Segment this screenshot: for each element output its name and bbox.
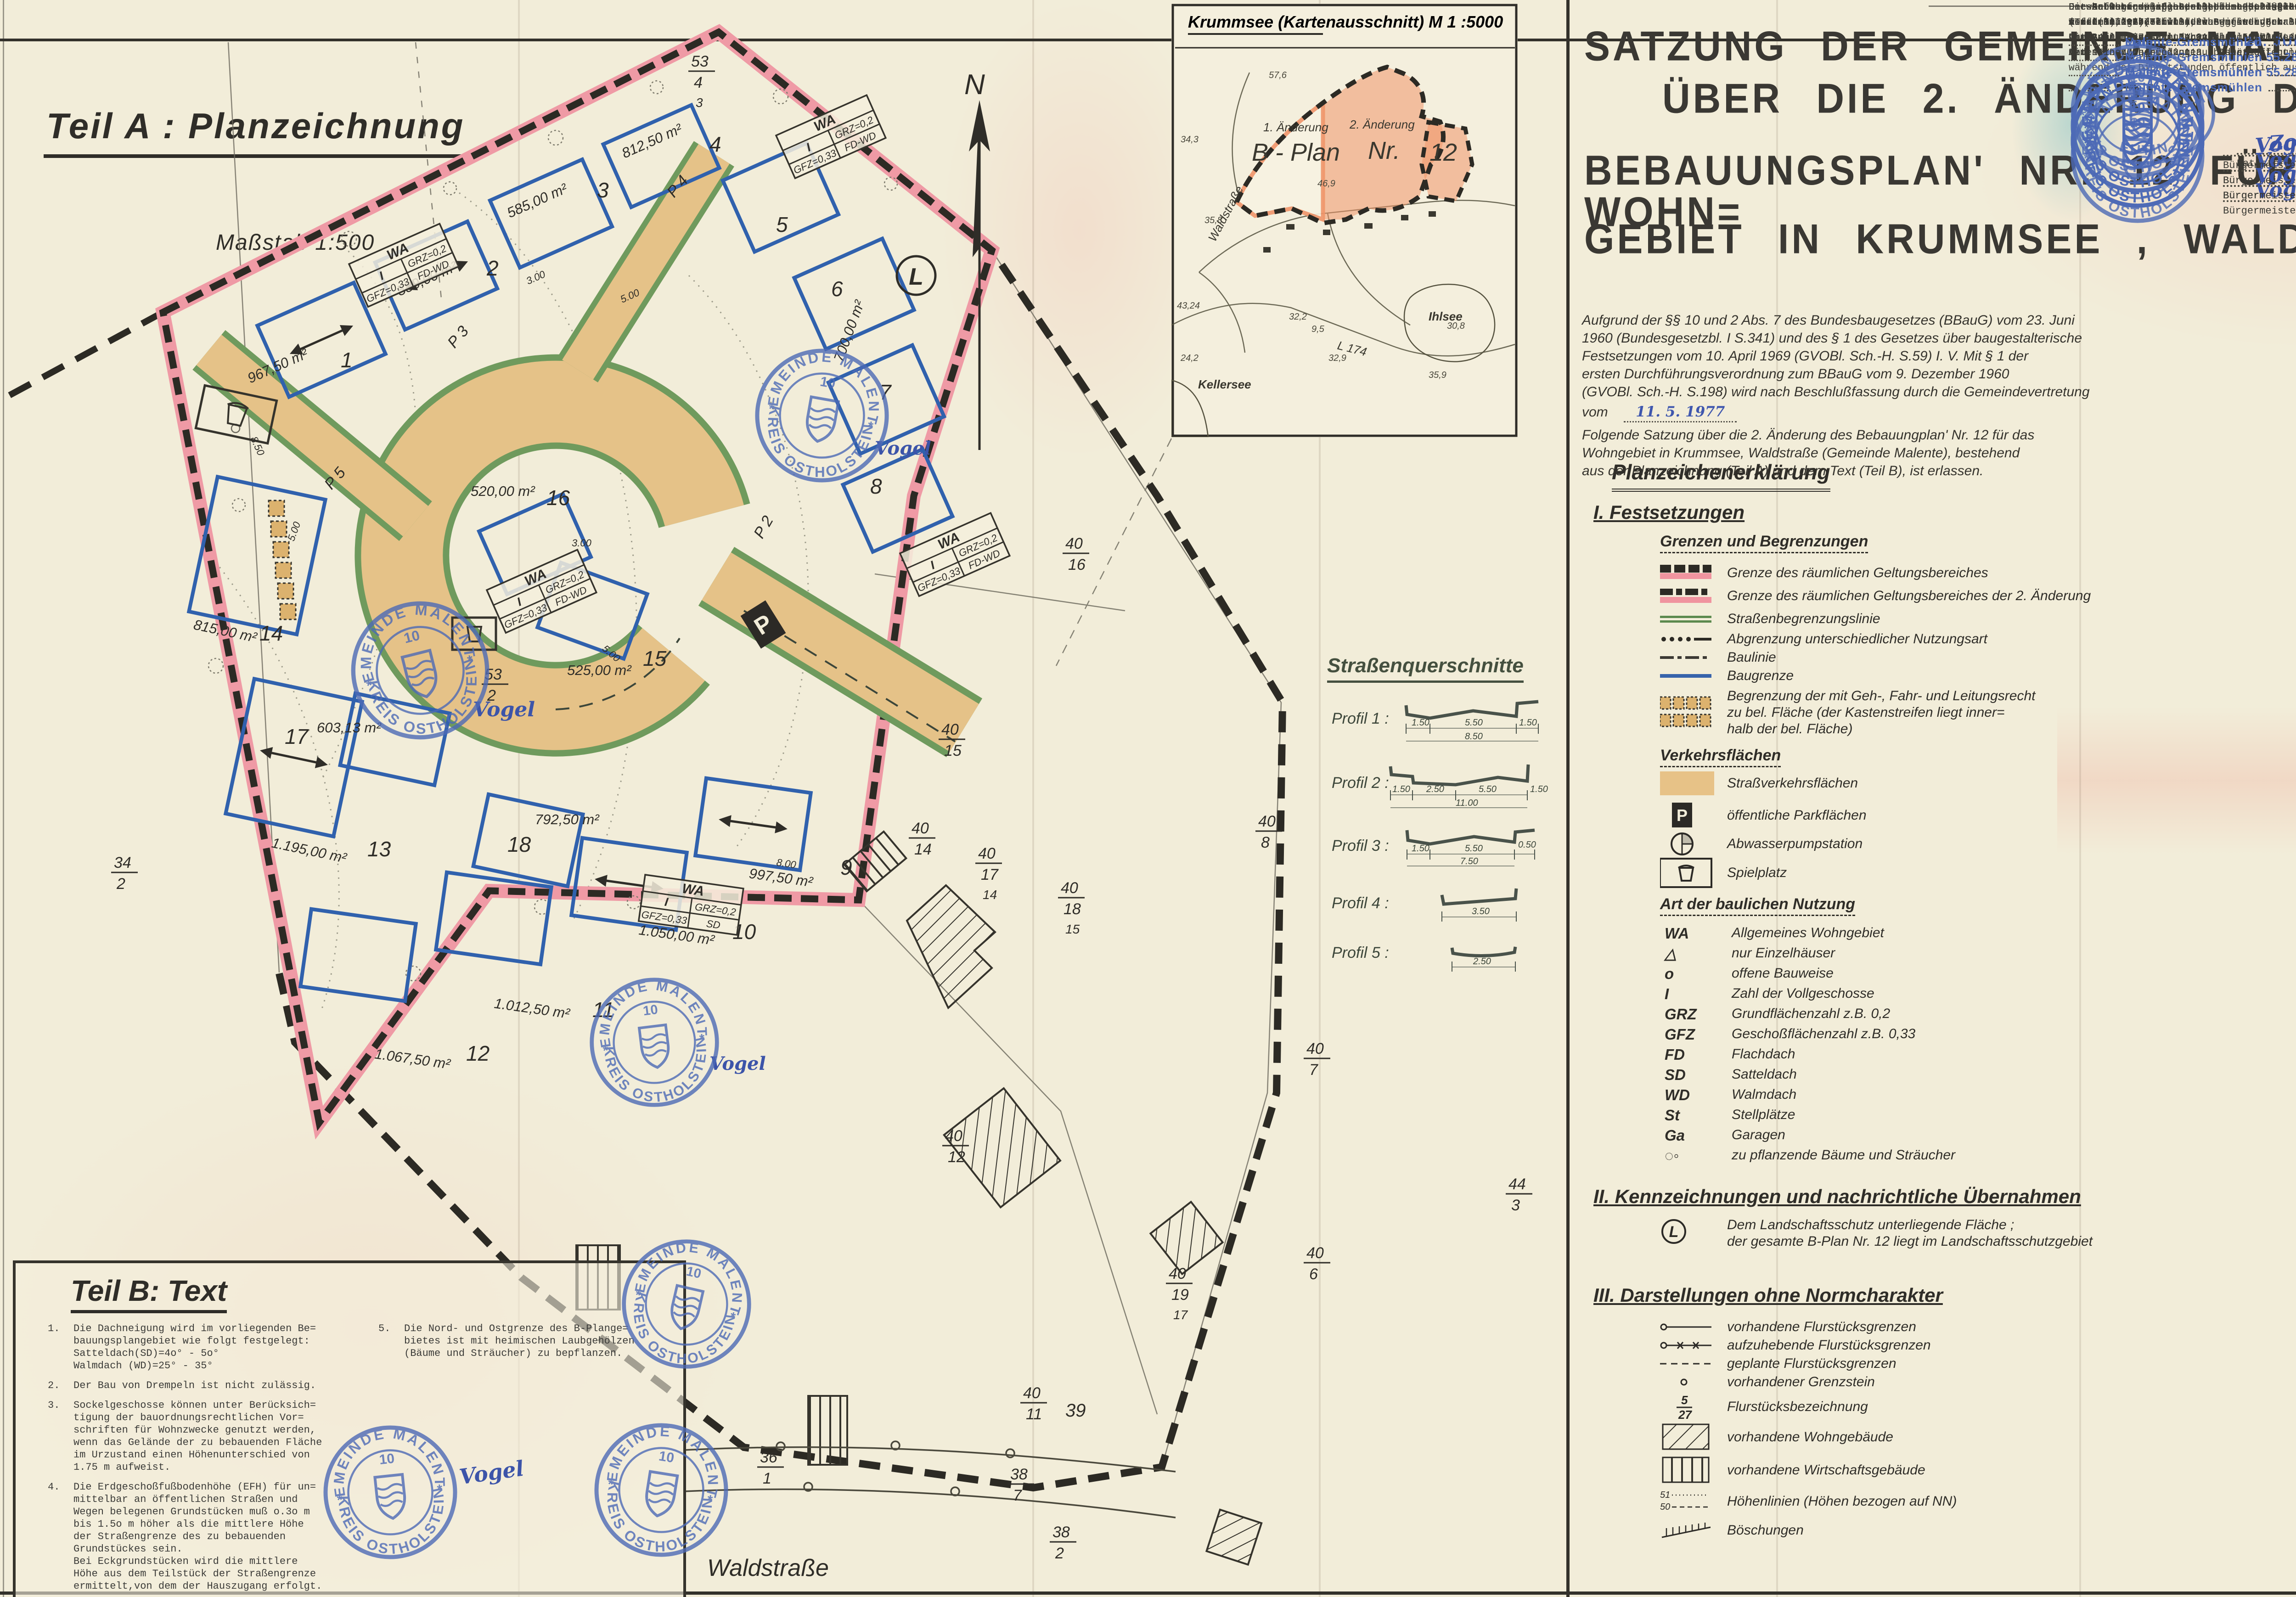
item-number: 5. bbox=[378, 1322, 404, 1360]
legend-item: 527 Flurstücksbezeichnung bbox=[1660, 1392, 1868, 1422]
svg-text:14: 14 bbox=[983, 888, 997, 902]
nutzung-code: ◌◦ bbox=[1665, 1148, 1720, 1163]
svg-text:P 2: P 2 bbox=[750, 513, 777, 541]
svg-text:2.50: 2.50 bbox=[1426, 784, 1444, 794]
svg-text:53: 53 bbox=[691, 53, 709, 70]
svg-text:39: 39 bbox=[1065, 1400, 1086, 1421]
profile-4-label: Profil 4 : bbox=[1332, 895, 1389, 911]
nutzung-label: Garagen bbox=[1732, 1127, 1785, 1143]
nutzung-code: I bbox=[1665, 986, 1720, 1001]
svg-text:38: 38 bbox=[1010, 1466, 1028, 1483]
item-number: 1. bbox=[48, 1322, 73, 1372]
nutzungsart-line-icon bbox=[1660, 632, 1715, 646]
svg-text:520,00 m²: 520,00 m² bbox=[471, 483, 535, 499]
svg-text:1.50: 1.50 bbox=[1392, 784, 1410, 794]
svg-text:40: 40 bbox=[1258, 813, 1276, 830]
legend-item: geplante Flurstücksgrenzen bbox=[1660, 1355, 1896, 1372]
svg-text:16: 16 bbox=[546, 486, 570, 510]
svg-text:1.012,50 m²: 1.012,50 m² bbox=[493, 995, 571, 1022]
svg-text:40: 40 bbox=[1061, 879, 1078, 897]
boundary-swatch-icon bbox=[1660, 564, 1715, 582]
nutzung-code: FD bbox=[1665, 1047, 1720, 1062]
svg-text:3: 3 bbox=[597, 178, 609, 202]
item-text: Die Nord- und Ostgrenze des B-Plange= bi… bbox=[404, 1322, 635, 1360]
svg-text:35,8: 35,8 bbox=[1204, 215, 1222, 225]
svg-text:1.50: 1.50 bbox=[1412, 843, 1429, 854]
svg-text:40: 40 bbox=[1306, 1040, 1324, 1057]
municipal-stamp bbox=[315, 1417, 466, 1568]
svg-text:5.50: 5.50 bbox=[1479, 784, 1497, 794]
legend-item: Abgrenzung unterschiedlicher Nutzungsart bbox=[1660, 631, 1987, 647]
legend-item: vorhandene Flurstücksgrenzen bbox=[1660, 1319, 1916, 1335]
gehfahrrecht-icon bbox=[1660, 695, 1715, 730]
svg-text:L: L bbox=[909, 264, 923, 290]
svg-text:11: 11 bbox=[1026, 1406, 1042, 1423]
nutzung-code: GFZ bbox=[1665, 1027, 1720, 1042]
flurgrenze-geplant-icon bbox=[1660, 1358, 1715, 1370]
svg-text:24,2: 24,2 bbox=[1180, 353, 1199, 363]
svg-text:19: 19 bbox=[1171, 1286, 1189, 1304]
svg-text:40: 40 bbox=[1065, 535, 1083, 552]
svg-text:3: 3 bbox=[696, 96, 703, 110]
legend-item: L Dem Landschaftsschutz unterliegende Fl… bbox=[1660, 1217, 2093, 1250]
municipal-stamp bbox=[580, 968, 728, 1116]
block-segment: 6.2.1978 bbox=[2109, 17, 2155, 28]
svg-text:7: 7 bbox=[1013, 1487, 1022, 1504]
svg-text:40: 40 bbox=[978, 845, 996, 862]
svg-text:18: 18 bbox=[507, 832, 531, 856]
svg-text:35,9: 35,9 bbox=[1429, 370, 1446, 380]
svg-text:43,24: 43,24 bbox=[1177, 301, 1200, 311]
svg-text:1.50: 1.50 bbox=[1412, 718, 1429, 728]
svg-text:15: 15 bbox=[643, 647, 667, 670]
svg-text:44: 44 bbox=[1508, 1175, 1526, 1193]
signer-role: Bürgermeister bbox=[2223, 190, 2296, 202]
svg-text:40: 40 bbox=[912, 820, 929, 837]
pumpstation-icon bbox=[1660, 832, 1715, 856]
svg-text:3.00: 3.00 bbox=[572, 537, 592, 549]
svg-text:792,50 m²: 792,50 m² bbox=[535, 811, 600, 827]
svg-text:7.50: 7.50 bbox=[1460, 856, 1478, 866]
teil-b-title: Teil B: Text bbox=[71, 1276, 227, 1313]
svg-text:18: 18 bbox=[1064, 900, 1081, 918]
profile-5-diagram: 2.50 bbox=[1414, 927, 1552, 977]
legend-item: Straßverkehrsflächen bbox=[1660, 770, 1858, 796]
svg-text:L: L bbox=[1669, 1223, 1679, 1241]
nutzung-code: △ bbox=[1665, 946, 1720, 961]
svg-text:1.50: 1.50 bbox=[1530, 784, 1548, 794]
legend-item: Baugrenze bbox=[1660, 668, 1794, 684]
profile-4-diagram: 3.50 bbox=[1414, 875, 1552, 930]
street-line-icon bbox=[1660, 611, 1715, 627]
item-number: 4. bbox=[48, 1481, 73, 1592]
profile-5-label: Profil 5 : bbox=[1332, 945, 1389, 961]
svg-text:17: 17 bbox=[1173, 1308, 1188, 1322]
svg-text:17: 17 bbox=[981, 866, 999, 883]
svg-text:5.50: 5.50 bbox=[1465, 718, 1483, 728]
svg-text:585,00 m²: 585,00 m² bbox=[505, 180, 570, 221]
wohngebaeude-icon bbox=[1660, 1423, 1715, 1451]
svg-text:2: 2 bbox=[1055, 1545, 1064, 1562]
legend-item: Begrenzung der mit Geh-, Fahr- und Leitu… bbox=[1660, 688, 2035, 737]
svg-text:14: 14 bbox=[259, 621, 283, 645]
legend-item: I Zahl der Vollgeschosse bbox=[1665, 984, 1955, 1004]
svg-text:B - Plan: B - Plan bbox=[1252, 139, 1340, 166]
svg-text:5: 5 bbox=[776, 213, 788, 236]
preamble-2: Folgende Satzung über die 2. Änderung de… bbox=[1582, 426, 2174, 480]
flurgrenze-aufhebung-icon bbox=[1660, 1339, 1715, 1351]
svg-text:1. Änderung: 1. Änderung bbox=[1263, 120, 1328, 134]
svg-text:P 3: P 3 bbox=[444, 323, 472, 352]
inset-map: Krummsee (Kartenausschnitt) M 1 :5000 1.… bbox=[1171, 4, 1518, 437]
preamble-vom-row: vom 11. 5. 1977 bbox=[1582, 403, 1737, 421]
nutzung-label: Geschoßflächenzahl z.B. 0,33 bbox=[1732, 1026, 1915, 1042]
profile-2-diagram: 1.50 2.50 5.50 1.50 11.00 bbox=[1387, 751, 1561, 817]
nutzung-code: WA bbox=[1665, 926, 1720, 941]
exit-road bbox=[716, 576, 964, 728]
svg-text:Waldstraße: Waldstraße bbox=[707, 1555, 829, 1581]
svg-text:30,8: 30,8 bbox=[1447, 321, 1465, 331]
landschaftsschutz-icon: L bbox=[1660, 1217, 1715, 1247]
wa-spec-box: WAIGRZ=0,2GFZ=0,33FD-WD bbox=[776, 95, 886, 178]
profile-3-diagram: 1.50 5.50 0.50 7.50 bbox=[1401, 814, 1557, 878]
nutzung-code: WD bbox=[1665, 1087, 1720, 1102]
svg-text:9: 9 bbox=[840, 855, 852, 879]
legend-sec1: I. Festsetzungen bbox=[1593, 503, 1745, 522]
svg-text:SD: SD bbox=[706, 918, 721, 931]
teil-b-item: 2. Der Bau von Drempeln ist nicht zuläss… bbox=[48, 1379, 360, 1392]
legend-item: FD Flachdach bbox=[1665, 1044, 1955, 1064]
svg-text:WA: WA bbox=[681, 881, 705, 899]
legend-item: aufzuhebende Flurstücksgrenzen bbox=[1660, 1337, 1931, 1354]
legend-item: △ nur Einzelhäuser bbox=[1665, 943, 1955, 963]
boundary2-swatch-icon bbox=[1660, 587, 1715, 605]
nutzung-code: Ga bbox=[1665, 1128, 1720, 1143]
legend-nutzung-title: Art der baulichen Nutzung bbox=[1660, 896, 1855, 916]
legend-item: Straßenbegrenzungslinie bbox=[1660, 611, 1880, 627]
legend-item: Grenze des räumlichen Geltungsbereiches … bbox=[1660, 587, 2091, 605]
svg-text:2: 2 bbox=[486, 256, 499, 280]
legend-item: GFZ Geschoßflächenzahl z.B. 0,33 bbox=[1665, 1024, 1955, 1044]
legend-item: SD Satteldach bbox=[1665, 1064, 1955, 1085]
svg-text:34: 34 bbox=[114, 854, 131, 872]
nutzung-code: St bbox=[1665, 1108, 1720, 1123]
svg-text:1.50: 1.50 bbox=[1519, 718, 1537, 728]
svg-text:5.50: 5.50 bbox=[1465, 843, 1483, 854]
nutzung-label: offene Bauweise bbox=[1732, 965, 1834, 982]
svg-text:15: 15 bbox=[944, 742, 962, 759]
svg-text:5.00: 5.00 bbox=[285, 520, 303, 543]
item-text: Der Bau von Drempeln ist nicht zulässig. bbox=[73, 1379, 316, 1392]
stamp bbox=[2069, 72, 2206, 210]
svg-text:P: P bbox=[1677, 806, 1688, 825]
legend-grenzen-title: Grenzen und Begrenzungen bbox=[1660, 534, 1868, 553]
profile-3-label: Profil 3 : bbox=[1332, 838, 1389, 854]
nutzung-label: Flachdach bbox=[1732, 1046, 1795, 1063]
legend-item: St Stellplätze bbox=[1665, 1105, 1955, 1125]
teil-b-item: 4. Die Erdgeschoßfußbodenhöhe (EFH) für … bbox=[48, 1481, 360, 1592]
legend-item: Abwasserpumpstation bbox=[1660, 832, 1863, 856]
svg-text:Nr.: Nr. bbox=[1368, 137, 1400, 164]
svg-text:6: 6 bbox=[1309, 1265, 1318, 1283]
wirtschaftsgebaeude-icon bbox=[1660, 1456, 1715, 1484]
parking-icon: P bbox=[1660, 803, 1715, 828]
grenzstein-icon bbox=[1660, 1376, 1715, 1388]
profile-2-label: Profil 2 : bbox=[1332, 775, 1389, 791]
svg-text:Kellersee: Kellersee bbox=[1198, 377, 1251, 391]
flurbezeichnung-icon: 527 bbox=[1660, 1392, 1715, 1422]
boeschung-icon bbox=[1660, 1519, 1715, 1542]
svg-text:11.00: 11.00 bbox=[1456, 798, 1478, 808]
svg-text:12: 12 bbox=[948, 1148, 965, 1166]
svg-text:5: 5 bbox=[1681, 1393, 1688, 1407]
svg-text:812,50 m²: 812,50 m² bbox=[619, 120, 685, 161]
svg-text:13: 13 bbox=[367, 837, 391, 861]
inset-title: Krummsee (Kartenausschnitt) M 1 :5000 bbox=[1188, 12, 1503, 31]
municipal-stamp bbox=[582, 1411, 740, 1569]
svg-text:12: 12 bbox=[466, 1041, 490, 1065]
svg-text:14: 14 bbox=[914, 841, 932, 858]
hoehenlinien-icon: 5150 bbox=[1660, 1490, 1715, 1513]
svg-text:3.00: 3.00 bbox=[524, 268, 547, 287]
legend-item: P öffentliche Parkflächen bbox=[1660, 803, 1867, 828]
nutzung-label: Satteldach bbox=[1732, 1066, 1797, 1083]
svg-text:2. Änderung: 2. Änderung bbox=[1349, 118, 1415, 131]
block-text: Dieser Bebauungsplan, bestehend aus Plan… bbox=[2069, 0, 2296, 61]
landschaftsschutz-symbol: L bbox=[897, 256, 935, 295]
nutzung-label: Allgemeines Wohngebiet bbox=[1732, 925, 1884, 941]
svg-text:3: 3 bbox=[1511, 1197, 1520, 1214]
svg-text:40: 40 bbox=[1306, 1244, 1324, 1262]
flurgrenze-icon bbox=[1660, 1321, 1715, 1333]
legend-item: vorhandene Wohngebäude bbox=[1660, 1423, 1893, 1451]
item-text: Sockelgeschosse können unter Berücksich=… bbox=[73, 1399, 322, 1473]
svg-text:50: 50 bbox=[1660, 1502, 1670, 1512]
item-number: 3. bbox=[48, 1399, 73, 1473]
teil-b-item: 1. Die Dachneigung wird im vorliegenden … bbox=[48, 1322, 360, 1372]
svg-text:9,5: 9,5 bbox=[1311, 324, 1325, 334]
svg-text:16: 16 bbox=[1068, 556, 1086, 574]
playground-icon bbox=[1660, 858, 1715, 888]
svg-text:38: 38 bbox=[1052, 1524, 1070, 1541]
profile-1-diagram: 1.50 5.50 1.50 8.50 bbox=[1401, 688, 1557, 752]
item-text: Die Dachneigung wird im vorliegenden Be=… bbox=[73, 1322, 316, 1372]
signature-block: Dieser Bebauungsplan, bestehend aus Plan… bbox=[2069, 0, 2296, 210]
legend-sec2: II. Kennzeichnungen und nachrichtliche Ü… bbox=[1593, 1187, 2081, 1206]
svg-text:7: 7 bbox=[1309, 1061, 1318, 1079]
svg-text:46,9: 46,9 bbox=[1317, 179, 1335, 189]
nutzung-code: GRZ bbox=[1665, 1007, 1720, 1022]
legend-item: 5150 Höhenlinien (Höhen bezogen auf NN) bbox=[1660, 1490, 1957, 1513]
svg-text:Waldstraße: Waldstraße bbox=[1205, 184, 1246, 244]
svg-text:1.067,50 m²: 1.067,50 m² bbox=[374, 1046, 452, 1072]
legend-item: Baulinie bbox=[1660, 649, 1776, 666]
preamble-1: Aufgrund der §§ 10 und 2 Abs. 7 des Bund… bbox=[1582, 311, 2174, 401]
svg-text:40: 40 bbox=[1023, 1384, 1041, 1402]
signature: Vogel bbox=[2255, 162, 2296, 186]
svg-text:12: 12 bbox=[1429, 139, 1457, 166]
legend-item: WD Walmdach bbox=[1665, 1085, 1955, 1105]
svg-text:27: 27 bbox=[1678, 1408, 1692, 1422]
municipal-stamp bbox=[742, 336, 902, 495]
svg-text:51: 51 bbox=[1660, 1490, 1670, 1500]
svg-text:1: 1 bbox=[763, 1470, 771, 1487]
legend-item: vorhandene Wirtschaftsgebäude bbox=[1660, 1456, 1925, 1484]
item-number: 2. bbox=[48, 1379, 73, 1392]
legend-item: vorhandener Grenzstein bbox=[1660, 1374, 1875, 1390]
svg-text:6: 6 bbox=[831, 277, 843, 301]
svg-text:36: 36 bbox=[760, 1449, 777, 1466]
svg-text:3.50: 3.50 bbox=[1472, 906, 1490, 917]
legend-item: Spielplatz bbox=[1660, 858, 1787, 888]
legend-item: Böschungen bbox=[1660, 1519, 1804, 1542]
svg-text:40: 40 bbox=[941, 721, 959, 738]
nutzung-label: Walmdach bbox=[1732, 1086, 1796, 1103]
teil-b-col1: 1. Die Dachneigung wird im vorliegenden … bbox=[48, 1322, 360, 1597]
adoption-date-handwritten: 11. 5. 1977 bbox=[1624, 404, 1737, 422]
svg-text:N: N bbox=[964, 69, 985, 101]
baugrenze-icon bbox=[1660, 669, 1715, 683]
svg-text:17: 17 bbox=[285, 725, 309, 748]
nutzung-label: zu pflanzende Bäume und Sträucher bbox=[1732, 1147, 1955, 1164]
road-area-icon bbox=[1660, 770, 1715, 796]
nutzung-label: nur Einzelhäuser bbox=[1732, 945, 1835, 962]
svg-text:4: 4 bbox=[709, 132, 721, 156]
legend-nutzung-list: WA Allgemeines Wohngebiet △ nur Einzelhä… bbox=[1665, 923, 1955, 1165]
svg-text:8: 8 bbox=[1261, 834, 1270, 851]
baulinie-icon bbox=[1660, 651, 1715, 664]
legend-item: WA Allgemeines Wohngebiet bbox=[1665, 923, 1955, 943]
legend-sec3: III. Darstellungen ohne Normcharakter bbox=[1593, 1286, 1943, 1305]
nutzung-label: Stellplätze bbox=[1732, 1107, 1795, 1123]
svg-text:34,3: 34,3 bbox=[1181, 135, 1199, 145]
signature-area: Vogel Bürgermeister bbox=[2223, 164, 2296, 202]
svg-text:40: 40 bbox=[1169, 1265, 1186, 1282]
profiles-heading: Straßenquerschnitte bbox=[1327, 656, 1524, 676]
legend-item: GRZ Grundflächenzahl z.B. 0,2 bbox=[1665, 1004, 1955, 1024]
svg-text:1: 1 bbox=[341, 348, 353, 372]
svg-text:2.50: 2.50 bbox=[1473, 956, 1491, 967]
svg-text:40: 40 bbox=[945, 1127, 962, 1145]
svg-text:2: 2 bbox=[116, 875, 125, 893]
svg-text:1.195,00 m²: 1.195,00 m² bbox=[270, 835, 349, 866]
nutzung-code: SD bbox=[1665, 1067, 1720, 1082]
profile-1-label: Profil 1 : bbox=[1332, 711, 1389, 726]
legend-verkehr-title: Verkehrsflächen bbox=[1660, 748, 1781, 767]
document-sheet: Teil A : Planzeichnung Maßstab 1:500 bbox=[0, 0, 2296, 1597]
nutzung-label: Zahl der Vollgeschosse bbox=[1732, 985, 1874, 1002]
svg-text:4: 4 bbox=[694, 74, 703, 91]
svg-text:0.50: 0.50 bbox=[1518, 840, 1536, 850]
legend-item: Grenze des räumlichen Geltungsbereiches bbox=[1660, 564, 1988, 582]
legend-item: Ga Garagen bbox=[1665, 1125, 1955, 1145]
svg-text:32,9: 32,9 bbox=[1328, 353, 1346, 363]
legend-item: o offene Bauweise bbox=[1665, 963, 1955, 984]
block-segments: Dieser Bebauungsplan, bestehend aus Plan… bbox=[2069, 2, 2296, 58]
svg-text:15: 15 bbox=[1065, 922, 1080, 936]
svg-text:8.50: 8.50 bbox=[1465, 731, 1483, 742]
svg-text:32,2: 32,2 bbox=[1289, 312, 1307, 322]
nutzung-label: Grundflächenzahl z.B. 0,2 bbox=[1732, 1006, 1890, 1022]
svg-text:525,00 m²: 525,00 m² bbox=[567, 662, 632, 678]
teil-b-item: 3. Sockelgeschosse können unter Berücksi… bbox=[48, 1399, 360, 1473]
svg-text:57,6: 57,6 bbox=[1269, 70, 1287, 80]
item-text: Die Erdgeschoßfußbodenhöhe (EFH) für un=… bbox=[73, 1481, 322, 1592]
signature-row: Vogel Bürgermeister bbox=[2069, 72, 2296, 210]
nutzung-code: o bbox=[1665, 966, 1720, 981]
legend-item: ◌◦ zu pflanzende Bäume und Sträucher bbox=[1665, 1145, 1955, 1165]
